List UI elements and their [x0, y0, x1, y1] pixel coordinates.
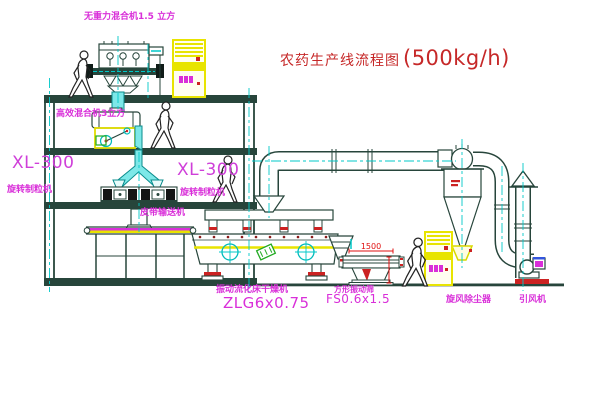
- process-flow-diagram: 1500 农药生产线流程图 (500kg/h) 无重力混合机1.5 立方 高效混…: [0, 0, 600, 403]
- control-cabinet-top: [173, 40, 205, 97]
- granulator-left: [101, 180, 139, 203]
- dryer-spring-hangers: [209, 220, 322, 232]
- title-capacity: (500kg/h): [403, 46, 510, 70]
- floor-slab-2: [44, 148, 257, 155]
- fan-base: [515, 279, 549, 284]
- belt-conveyor: [84, 227, 196, 278]
- label-screen-model: FS0.6x1.5: [326, 293, 390, 305]
- label-dryer-model: ZLG6x0.75: [223, 296, 310, 311]
- label-granulator-left-name: 旋转制粒机: [7, 186, 52, 195]
- label-fan: 引风机: [519, 296, 546, 305]
- cyclone-red-mark: [451, 184, 458, 186]
- label-high-efficiency-mixer: 高效混合机3立方: [56, 110, 125, 119]
- screen-length-dimension: 1500: [361, 242, 381, 251]
- worker-figure-floor2: [151, 102, 175, 148]
- label-belt-conveyor: 皮带输送机: [140, 209, 185, 218]
- control-cabinet-ground: [425, 232, 452, 285]
- dryer-foot-left: [202, 264, 223, 280]
- label-cyclone: 旋风除尘器: [446, 296, 491, 305]
- diagram-title: 农药生产线流程图 (500kg/h): [280, 46, 510, 70]
- label-granulator-right-name: 旋转制粒机: [180, 189, 225, 198]
- granulator-right: [139, 180, 177, 203]
- label-granulator-left-model: XL-300: [12, 155, 74, 172]
- label-granulator-right-model: XL-300: [177, 162, 239, 179]
- title-text: 农药生产线流程图: [280, 50, 400, 70]
- vibrating-screen: 1500: [329, 236, 404, 285]
- cyclone-red-mark: [451, 180, 460, 182]
- dryer-foot-right: [306, 264, 327, 280]
- exhaust-duct: [269, 149, 449, 196]
- roof-slab: [44, 95, 257, 103]
- worker-figure-ground: [402, 238, 427, 286]
- label-gravity-free-mixer: 无重力混合机1.5 立方: [84, 13, 175, 22]
